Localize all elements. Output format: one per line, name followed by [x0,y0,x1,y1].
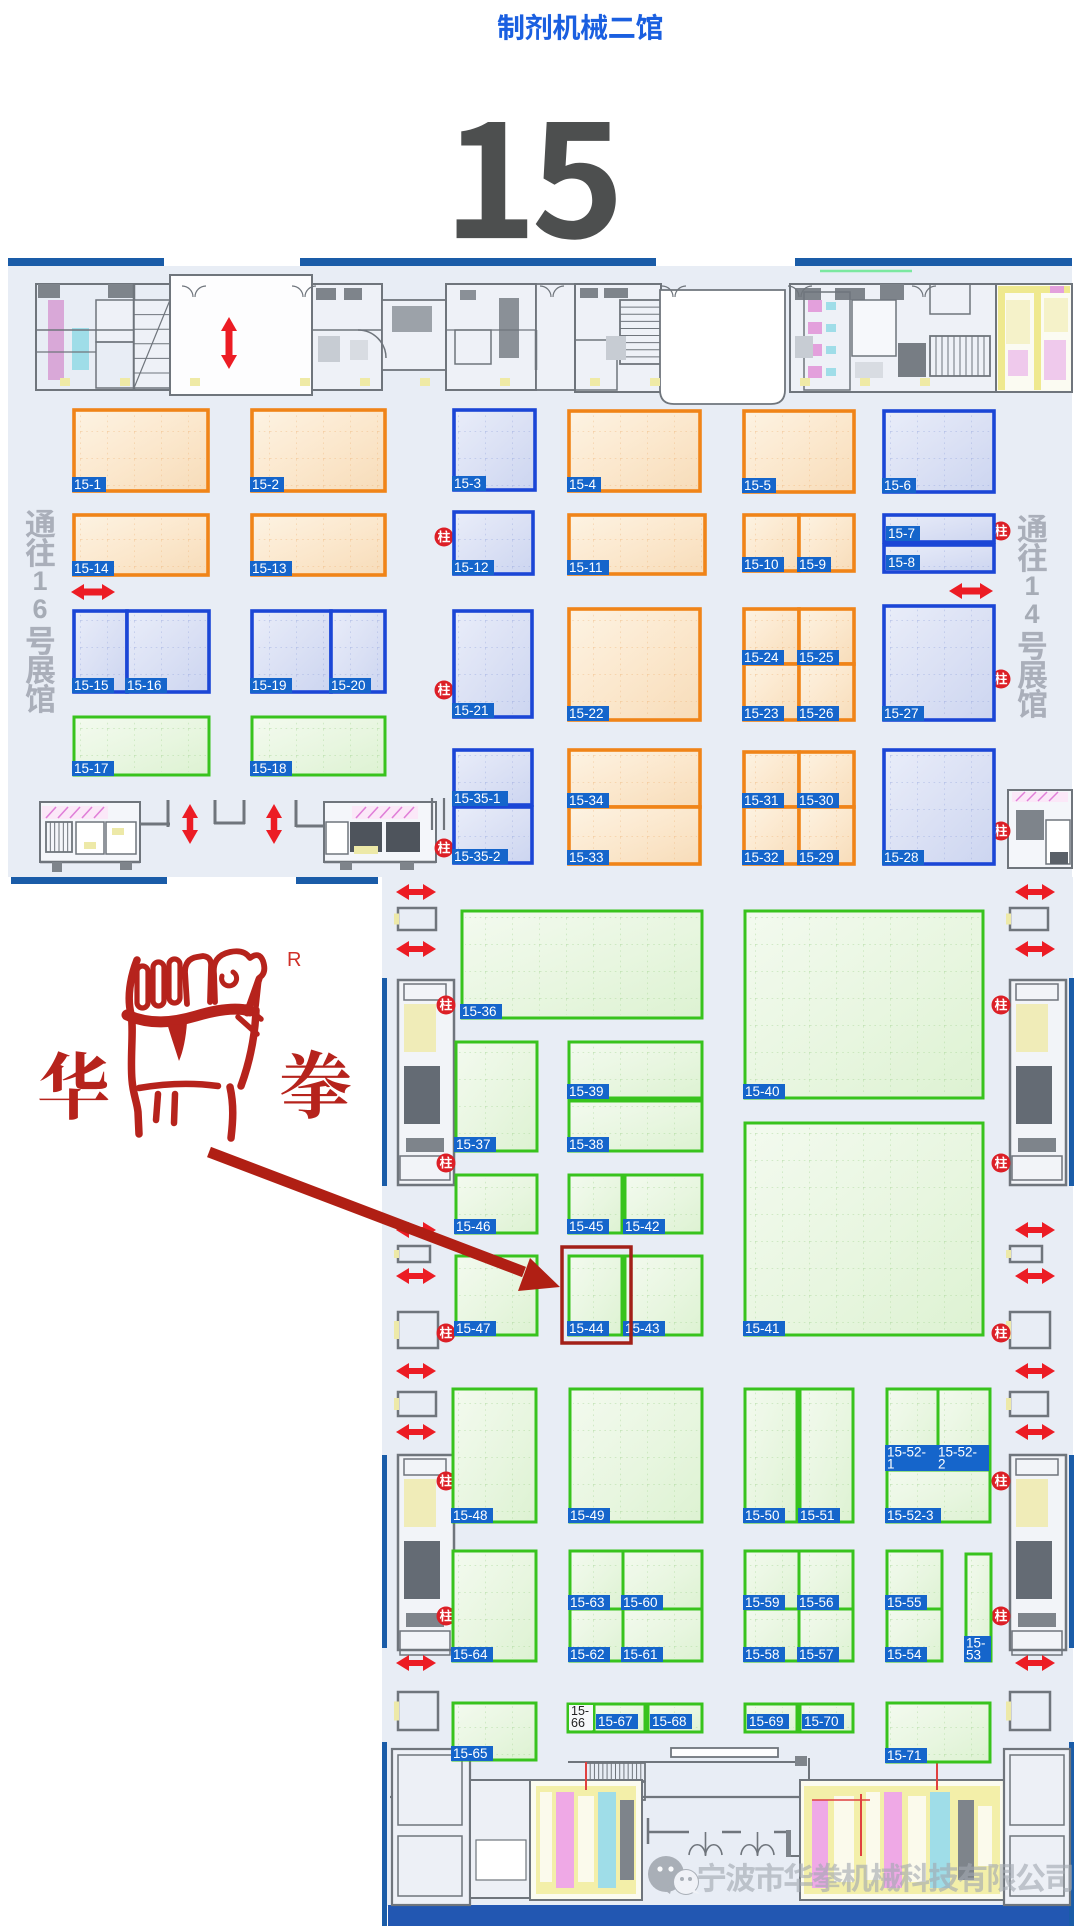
svg-text:15-64: 15-64 [453,1647,488,1662]
svg-text:1: 1 [32,566,47,596]
svg-text:4: 4 [1024,599,1039,629]
svg-text:15-15: 15-15 [74,678,109,693]
svg-text:15-54: 15-54 [887,1647,922,1662]
svg-text:53: 53 [966,1648,981,1663]
svg-text:15-55: 15-55 [887,1595,922,1610]
svg-text:15-49: 15-49 [570,1508,605,1523]
svg-text:15-6: 15-6 [884,478,911,493]
svg-text:15-29: 15-29 [799,850,834,865]
svg-text:15-68: 15-68 [652,1714,687,1729]
svg-text:15-3: 15-3 [454,476,481,491]
svg-text:15-48: 15-48 [453,1508,488,1523]
svg-text:66: 66 [571,1716,585,1730]
svg-text:15-10: 15-10 [744,557,779,572]
svg-text:15-8: 15-8 [888,555,915,570]
svg-text:15-2: 15-2 [252,477,279,492]
svg-text:15-61: 15-61 [623,1647,658,1662]
svg-text:15-67: 15-67 [598,1714,633,1729]
svg-text:15-1: 15-1 [74,477,101,492]
svg-text:15-46: 15-46 [456,1219,491,1234]
svg-text:15-5: 15-5 [744,478,771,493]
svg-text:15-13: 15-13 [252,561,287,576]
svg-text:15-63: 15-63 [570,1595,605,1610]
svg-text:15-26: 15-26 [799,706,834,721]
svg-text:15-59: 15-59 [745,1595,780,1610]
svg-text:1: 1 [1024,571,1039,601]
svg-text:15-31: 15-31 [744,793,779,808]
svg-text:15-4: 15-4 [569,477,597,492]
svg-text:15-36: 15-36 [462,1004,497,1019]
svg-text:15-62: 15-62 [570,1647,605,1662]
svg-text:15-38: 15-38 [569,1137,604,1152]
svg-text:6: 6 [32,594,47,624]
svg-text:15-47: 15-47 [456,1321,491,1336]
svg-text:15-60: 15-60 [623,1595,658,1610]
svg-text:15-34: 15-34 [569,793,604,808]
svg-text:15-23: 15-23 [744,706,779,721]
svg-text:15-35-1: 15-35-1 [454,791,501,806]
svg-text:15-42: 15-42 [625,1219,660,1234]
svg-text:15-32: 15-32 [744,850,779,865]
svg-text:15-51: 15-51 [800,1508,835,1523]
svg-text:15-11: 15-11 [569,560,603,575]
svg-text:15-39: 15-39 [569,1084,604,1099]
svg-text:15-57: 15-57 [799,1647,834,1662]
svg-text:15-69: 15-69 [749,1714,784,1729]
svg-text:15-14: 15-14 [74,561,109,576]
svg-text:15-21: 15-21 [454,703,489,718]
svg-text:15-19: 15-19 [252,678,287,693]
svg-text:15-33: 15-33 [569,850,604,865]
svg-text:15-24: 15-24 [744,650,779,665]
svg-text:15-45: 15-45 [569,1219,604,1234]
svg-text:15-9: 15-9 [799,557,826,572]
svg-text:15-16: 15-16 [127,678,162,693]
svg-text:15-50: 15-50 [745,1508,780,1523]
svg-text:15-30: 15-30 [799,793,834,808]
svg-text:15-37: 15-37 [456,1137,491,1152]
svg-text:15-18: 15-18 [252,761,287,776]
svg-text:15-7: 15-7 [888,526,915,541]
svg-text:15-71: 15-71 [887,1748,922,1763]
svg-text:15-25: 15-25 [799,650,834,665]
svg-text:15-22: 15-22 [569,706,604,721]
svg-text:2: 2 [938,1457,946,1472]
svg-text:1: 1 [887,1457,895,1472]
svg-text:15-58: 15-58 [745,1647,780,1662]
svg-text:15-70: 15-70 [804,1714,839,1729]
svg-text:15-40: 15-40 [745,1084,780,1099]
svg-text:15-52-3: 15-52-3 [887,1508,934,1523]
svg-text:15-27: 15-27 [884,706,919,721]
svg-text:15-17: 15-17 [74,761,109,776]
svg-text:15-65: 15-65 [453,1746,488,1761]
svg-text:R: R [287,949,301,971]
svg-text:15-12: 15-12 [454,560,489,575]
svg-text:15-35-2: 15-35-2 [454,849,501,864]
svg-text:15-41: 15-41 [745,1321,780,1336]
svg-text:15-56: 15-56 [799,1595,834,1610]
svg-text:15-20: 15-20 [331,678,366,693]
svg-text:15-28: 15-28 [884,850,919,865]
svg-text:15-44: 15-44 [569,1321,604,1336]
